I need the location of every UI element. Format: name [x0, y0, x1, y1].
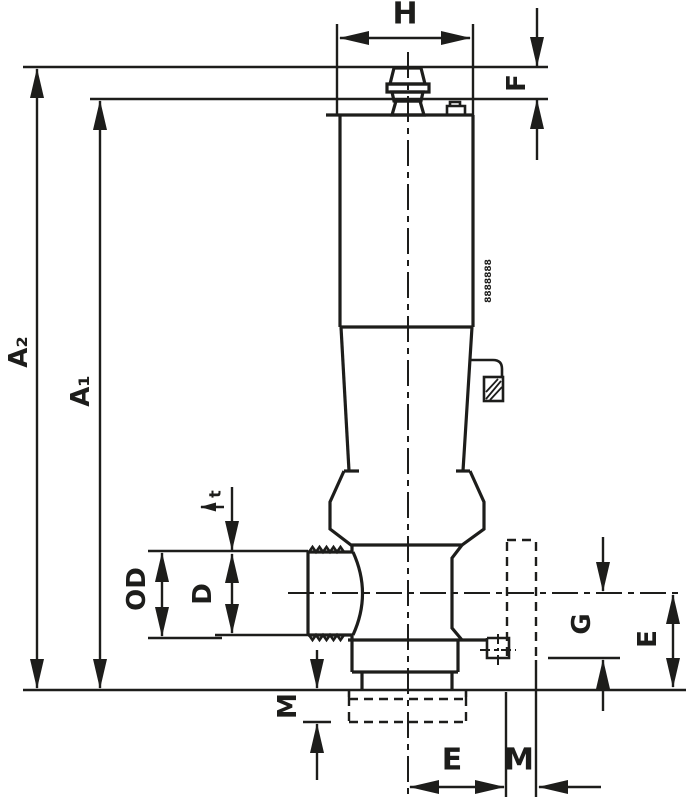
label-overall-height: A₂ — [4, 336, 34, 368]
taper-right — [463, 327, 472, 471]
label-body-height: A₁ — [66, 375, 96, 407]
label-port-to-base: E — [633, 630, 663, 648]
taper-left — [341, 327, 349, 471]
label-port-to-face: G — [567, 613, 597, 634]
body-marking-text: 8888888 — [484, 259, 494, 303]
dimension-labels: H F A₂ A₁ t OD D G E M E M 8888888 — [4, 0, 663, 778]
label-outer-diameter: OD — [122, 567, 152, 611]
label-center-to-end: E — [442, 743, 463, 778]
clip-hatch-3 — [490, 387, 502, 400]
side-clip-hook — [470, 360, 502, 378]
valve-outline — [308, 68, 536, 722]
technical-drawing-page: H F A₂ A₁ t OD D G E M E M 8888888 — [0, 0, 686, 800]
label-port-diameter: D — [188, 583, 218, 605]
valve-dimension-drawing: H F A₂ A₁ t OD D G E M E M 8888888 — [0, 0, 686, 800]
label-thread-depth: t — [206, 490, 225, 498]
dimensions — [23, 8, 686, 797]
label-end-thread: M — [504, 743, 534, 778]
label-base-thread: M — [273, 693, 303, 719]
label-width-top: H — [392, 0, 417, 32]
label-cap-height: F — [502, 74, 532, 92]
